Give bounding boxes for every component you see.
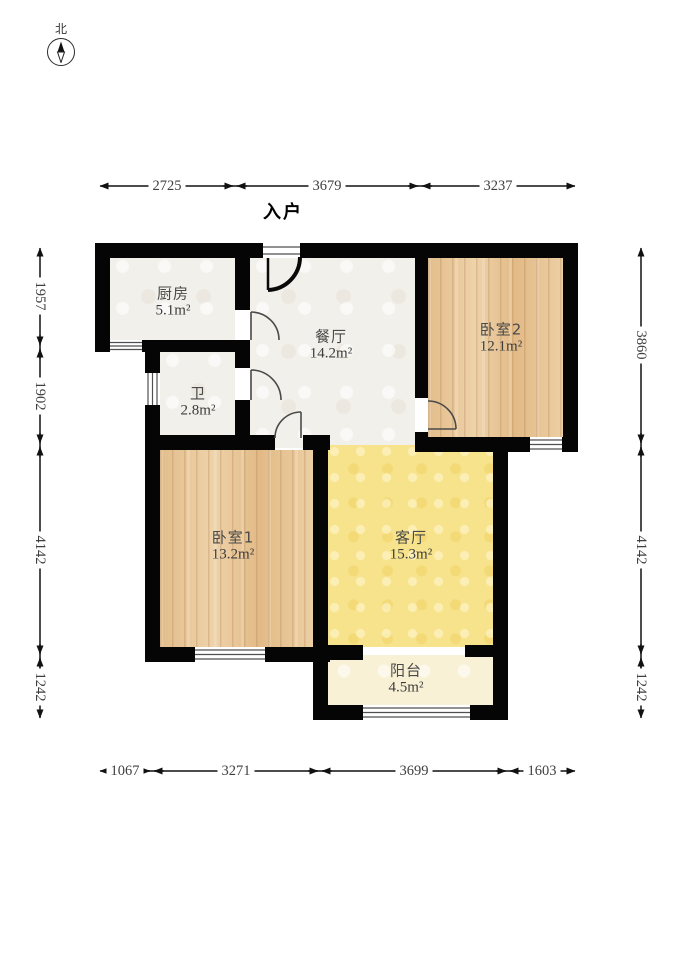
room-area: 14.2m²	[310, 346, 352, 363]
wall-segment	[415, 243, 428, 398]
bathroom-door	[251, 370, 281, 400]
wall-segment	[313, 705, 363, 720]
room-label-kitchen: 厨房 5.1m²	[156, 285, 191, 320]
room-name: 卧室1	[212, 529, 255, 547]
dim-label-right-2: 4142	[633, 532, 649, 569]
dim-label-top-3: 3237	[480, 178, 517, 194]
bedroom1-window	[195, 647, 265, 662]
room-label-balcony: 阳台 4.5m²	[389, 662, 424, 697]
room-label-bedroom2: 卧室2 12.1m²	[480, 321, 523, 356]
room-name: 厨房	[156, 285, 191, 303]
dimension-lines	[40, 186, 641, 771]
dim-label-bottom-1: 1067	[107, 763, 144, 779]
wall-segment	[465, 645, 493, 657]
dim-label-top-2: 3679	[309, 178, 346, 194]
entry-sill	[263, 243, 300, 258]
room-area: 2.8m²	[181, 403, 216, 420]
dim-label-bottom-3: 3699	[396, 763, 433, 779]
kitchen-door	[251, 312, 279, 340]
room-label-bedroom1: 卧室1 13.2m²	[212, 529, 255, 564]
entry-door	[268, 257, 300, 290]
room-name: 客厅	[390, 529, 432, 547]
room-label-dining: 餐厅 14.2m²	[310, 328, 352, 363]
wall-segment	[328, 645, 363, 660]
wall-segment	[145, 647, 195, 662]
room-label-bathroom: 卫 2.8m²	[181, 385, 216, 420]
room-area: 12.1m²	[480, 339, 523, 356]
dim-label-right-1: 3860	[633, 327, 649, 364]
room-label-living: 客厅 15.3m²	[390, 529, 432, 564]
bedroom2-door	[428, 401, 456, 429]
dim-label-left-4: 1242	[32, 669, 48, 706]
entry-label: 入户	[263, 198, 303, 224]
wall-segment	[470, 705, 508, 720]
dim-label-top-1: 2725	[149, 178, 186, 194]
wall-segment	[415, 437, 530, 452]
dim-label-bottom-4: 1603	[524, 763, 561, 779]
wall-segment	[303, 435, 330, 450]
dim-label-left-2: 1902	[32, 378, 48, 415]
wall-segment	[563, 243, 578, 452]
kitchen-window	[110, 340, 142, 352]
wall-segment	[265, 647, 330, 662]
room-area: 4.5m²	[389, 680, 424, 697]
wall-segment	[313, 450, 328, 720]
wall-segment	[300, 243, 578, 258]
bathroom-window	[145, 373, 160, 405]
wall-segment	[145, 435, 275, 450]
dim-label-bottom-2: 3271	[218, 763, 255, 779]
dim-label-left-3: 4142	[32, 532, 48, 569]
bedroom2-window	[530, 437, 562, 452]
wall-segment	[235, 243, 250, 310]
wall-segment	[562, 437, 578, 452]
room-area: 5.1m²	[156, 303, 191, 320]
dim-label-left-1: 1957	[32, 278, 48, 315]
balcony-window	[363, 705, 470, 720]
room-area: 15.3m²	[390, 547, 432, 564]
room-name: 卧室2	[480, 321, 523, 339]
floorplan-canvas: 北	[0, 0, 682, 962]
wall-segment	[95, 243, 110, 352]
dim-label-right-3: 1242	[633, 669, 649, 706]
room-name: 餐厅	[310, 328, 352, 346]
wall-segment	[235, 340, 250, 368]
bedroom1-door	[275, 412, 301, 438]
room-area: 13.2m²	[212, 547, 255, 564]
room-name: 卫	[181, 385, 216, 403]
plan-drawing	[0, 0, 682, 962]
wall-segment	[145, 340, 160, 373]
room-name: 阳台	[389, 662, 424, 680]
wall-segment	[493, 452, 508, 720]
